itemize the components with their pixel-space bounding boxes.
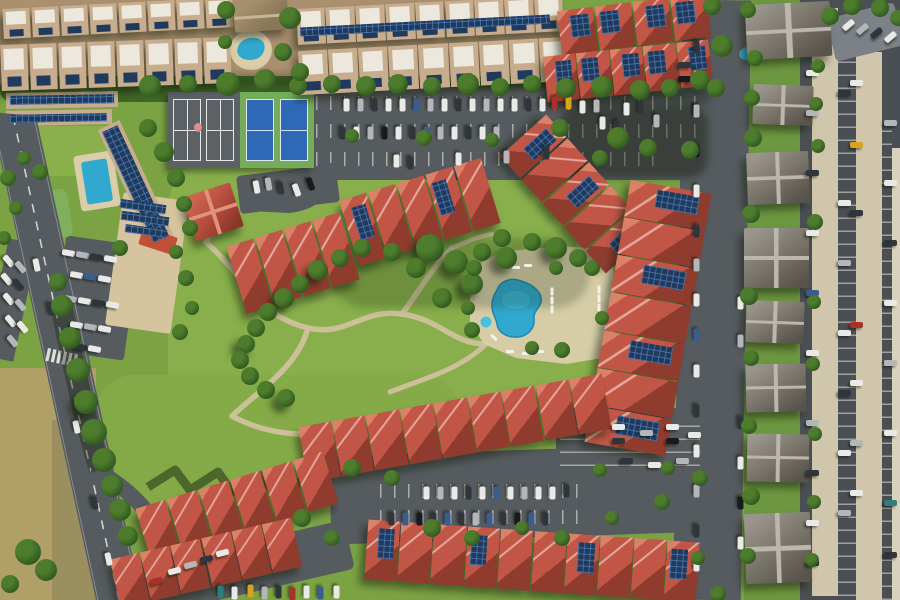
tree-canopy: [654, 494, 670, 510]
tree-canopy: [740, 548, 756, 564]
tree-canopy: [92, 448, 116, 472]
tree-canopy: [554, 530, 570, 546]
tree-canopy: [139, 75, 161, 97]
tree-canopy: [118, 526, 138, 546]
tree-canopy: [345, 129, 359, 143]
tree-canopy: [169, 245, 183, 259]
tree-canopy: [179, 75, 197, 93]
tree-canopy: [554, 342, 570, 358]
tree-canopy: [466, 260, 482, 276]
tree-canopy: [584, 260, 600, 276]
tree-canopy: [605, 511, 619, 525]
tree-canopy: [257, 381, 275, 399]
tree-canopy: [172, 324, 188, 340]
tree-canopy: [178, 270, 194, 286]
tree-canopy: [51, 295, 73, 317]
tree-canopy: [0, 170, 16, 186]
tree-canopy: [747, 50, 763, 66]
tree-canopy: [523, 75, 541, 93]
tree-canopy: [461, 273, 483, 295]
tree-canopy: [279, 7, 301, 29]
tree-canopy: [493, 229, 511, 247]
tree-canopy: [416, 234, 444, 262]
tree-canopy: [291, 63, 309, 81]
tree-canopy: [742, 205, 760, 223]
tree-canopy: [101, 475, 123, 497]
tree-canopy: [639, 139, 657, 157]
tree-canopy: [0, 231, 11, 245]
tree-canopy: [293, 509, 311, 527]
tree-canopy: [808, 427, 822, 441]
tree-canopy: [711, 35, 733, 57]
tree-canopy: [710, 586, 726, 600]
tree-canopy: [593, 463, 607, 477]
tree-canopy: [551, 119, 569, 137]
tree-canopy: [15, 539, 41, 565]
tree-canopy: [742, 487, 760, 505]
tree-canopy: [461, 301, 475, 315]
tree-canopy: [807, 495, 821, 509]
tree-canopy: [549, 261, 563, 275]
tree-canopy: [185, 301, 199, 315]
tree-canopy: [353, 239, 371, 257]
tree-canopy: [591, 76, 613, 98]
tree-canopy: [324, 530, 340, 546]
tree-canopy: [216, 72, 240, 96]
tree-canopy: [66, 358, 90, 382]
tree-canopy: [154, 142, 174, 162]
tree-canopy: [388, 74, 408, 94]
tree-canopy: [35, 559, 57, 581]
tree-canopy: [247, 319, 265, 337]
tree-canopy: [692, 470, 708, 486]
tree-canopy: [871, 0, 889, 17]
tree-canopy: [457, 73, 479, 95]
tree-canopy: [274, 288, 294, 308]
tree-canopy: [444, 250, 468, 274]
tree-canopy: [556, 78, 576, 98]
tree-canopy: [545, 237, 567, 259]
tree-canopy: [744, 90, 760, 106]
tree-canopy: [139, 119, 157, 137]
tree-canopy: [59, 327, 81, 349]
tree-canopy: [17, 151, 31, 165]
tree-canopy: [277, 389, 295, 407]
tree-canopy: [274, 43, 292, 61]
tree-canopy: [491, 78, 509, 96]
tree-canopy: [308, 260, 328, 280]
tree-canopy: [805, 553, 819, 567]
tree-canopy: [384, 470, 400, 486]
tree-canopy: [291, 275, 309, 293]
tree-canopy: [81, 419, 107, 445]
tree-canopy: [495, 247, 517, 269]
tree-canopy: [809, 97, 823, 111]
tree-canopy: [1, 575, 19, 593]
tree-canopy: [416, 130, 432, 146]
tree-canopy: [741, 418, 757, 434]
tree-canopy: [231, 351, 249, 369]
trees-layer: [0, 0, 900, 600]
tree-canopy: [176, 196, 192, 212]
tree-canopy: [473, 243, 491, 261]
tree-canopy: [356, 76, 376, 96]
tree-canopy: [630, 80, 650, 100]
tree-canopy: [343, 459, 361, 477]
tree-canopy: [112, 240, 128, 256]
tree-canopy: [607, 127, 629, 149]
tree-canopy: [241, 367, 259, 385]
tree-canopy: [811, 139, 825, 153]
tree-canopy: [703, 0, 721, 15]
tree-canopy: [218, 35, 232, 49]
tree-canopy: [383, 243, 401, 261]
tree-canopy: [432, 288, 452, 308]
tree-canopy: [843, 0, 861, 15]
tree-canopy: [9, 201, 23, 215]
tree-canopy: [744, 129, 762, 147]
aerial-photo-resort: [0, 0, 900, 600]
tree-canopy: [661, 79, 679, 97]
tree-canopy: [182, 220, 198, 236]
tree-canopy: [707, 79, 725, 97]
tree-canopy: [681, 141, 699, 159]
tree-canopy: [595, 311, 609, 325]
tree-canopy: [331, 249, 349, 267]
tree-canopy: [167, 169, 185, 187]
tree-canopy: [890, 10, 900, 26]
tree-canopy: [259, 303, 277, 321]
tree-canopy: [49, 273, 67, 291]
tree-canopy: [523, 233, 541, 251]
tree-canopy: [323, 75, 341, 93]
tree-canopy: [743, 350, 759, 366]
tree-canopy: [485, 133, 499, 147]
tree-canopy: [406, 258, 426, 278]
tree-canopy: [807, 214, 823, 230]
tree-canopy: [740, 287, 758, 305]
tree-canopy: [32, 164, 48, 180]
tree-canopy: [254, 69, 276, 91]
tree-canopy: [423, 519, 441, 537]
tree-canopy: [811, 59, 825, 73]
tree-canopy: [807, 295, 821, 309]
tree-canopy: [109, 499, 131, 521]
tree-canopy: [592, 150, 608, 166]
tree-canopy: [806, 357, 820, 371]
tree-canopy: [464, 322, 480, 338]
tree-canopy: [525, 341, 539, 355]
tree-canopy: [464, 530, 480, 546]
tree-canopy: [740, 2, 756, 18]
tree-canopy: [821, 7, 839, 25]
tree-canopy: [515, 521, 529, 535]
tree-canopy: [217, 1, 235, 19]
tree-canopy: [661, 461, 675, 475]
tree-canopy: [423, 77, 441, 95]
tree-canopy: [691, 551, 705, 565]
tree-canopy: [74, 390, 98, 414]
